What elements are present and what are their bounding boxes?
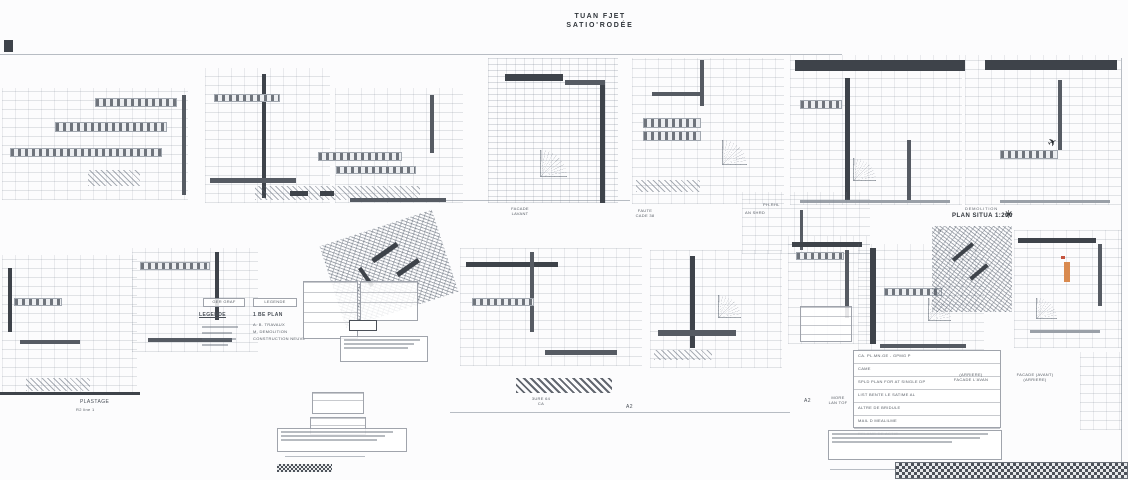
wall-segment	[1018, 238, 1096, 243]
wall-segment	[907, 140, 911, 202]
sheet-marker-a2: A2	[626, 404, 633, 411]
hatched-wall	[55, 122, 167, 132]
table-row	[313, 400, 363, 407]
note-box	[340, 336, 428, 362]
wall-segment	[545, 350, 617, 355]
wall-segment	[530, 252, 534, 332]
ground-hatch	[516, 378, 612, 393]
legend-header-right: LEGENDE	[253, 298, 297, 307]
wall-segment	[1030, 330, 1100, 333]
note-rule	[285, 456, 365, 457]
wall-segment	[430, 95, 434, 153]
table-row	[313, 393, 363, 400]
legend-header-left: GER GRAF	[203, 298, 245, 307]
compass-star-icon: ✳	[1004, 208, 1013, 222]
dimension-line	[640, 412, 790, 413]
text-line	[344, 347, 408, 349]
table-row	[361, 292, 417, 302]
edge-mark	[4, 40, 13, 52]
table-row	[311, 418, 365, 425]
detail-cluster	[1080, 352, 1122, 430]
wall-segment	[795, 60, 965, 71]
annotation-table	[360, 281, 418, 321]
legend-swatch	[202, 326, 238, 328]
hatched-wall	[643, 118, 701, 128]
wall-segment	[870, 248, 876, 344]
wall-segment	[466, 262, 558, 267]
hatch-area	[636, 180, 700, 192]
facade-caption-right: FAUTE CADE 38	[615, 208, 675, 218]
wall-segment	[652, 92, 704, 96]
sheet-rule	[0, 54, 842, 55]
hatch-area	[654, 350, 712, 360]
hatched-wall	[318, 152, 402, 161]
text-line	[344, 339, 420, 341]
legend-swatch	[202, 332, 232, 334]
title-block-row: ALTRE DE BRIDULE	[854, 402, 1000, 415]
title-block-row: CA. PL.MN.GE - GPMG P	[854, 351, 1000, 363]
text-line	[832, 441, 952, 443]
hatched-wall	[643, 131, 701, 141]
hatched-wall	[796, 252, 844, 260]
facade-caption-left-line2: LAVANT	[490, 211, 550, 216]
legend-item: A. B. TRAVAUX	[253, 322, 285, 327]
scale-bar	[277, 464, 332, 472]
legend-item: CONSTRUCTION NEUVE	[253, 336, 306, 341]
hatched-wall	[800, 100, 842, 109]
sheet-title-line2: SATIO'RODÉE	[510, 21, 690, 30]
wall-segment	[290, 191, 308, 196]
wall-segment	[792, 242, 862, 247]
ground-line	[0, 392, 140, 395]
wall-segment	[505, 74, 563, 81]
legend-block: GER GRAF LEGENDE LEGENDE 1 BE PLAN A. B.…	[195, 298, 303, 364]
plan-label-left-line1: PLASTAGE	[80, 399, 109, 406]
table-row	[361, 302, 417, 312]
hatched-wall	[14, 298, 62, 306]
title-block: CA. PL.MN.GE - GPMG P CAME SPLD PLAN FOR…	[853, 350, 1001, 428]
wall-segment	[320, 191, 334, 196]
key-cell	[349, 320, 377, 331]
detail-label-1: PH-RHL	[763, 202, 780, 207]
wall-segment	[700, 60, 704, 106]
table-row	[361, 282, 417, 292]
text-line	[832, 437, 980, 439]
legend-swatch	[202, 344, 228, 346]
facade-caption-left: FACADE LAVANT	[490, 206, 550, 216]
title-block-row: MAIL D MEALILME	[854, 415, 1000, 428]
floor-plan-cluster	[790, 55, 962, 205]
hatched-wall	[1000, 150, 1058, 159]
hatched-wall	[472, 298, 534, 306]
text-line	[281, 435, 385, 437]
legend-title: LEGENDE	[199, 312, 226, 319]
table-row	[801, 316, 851, 325]
wall-segment	[658, 330, 736, 336]
annotation-table	[312, 392, 364, 414]
hatched-wall	[95, 98, 177, 107]
table-row	[304, 282, 357, 292]
table-row	[801, 325, 851, 334]
wall-segment	[210, 178, 296, 183]
elevation-caption-right: FACADE (AVANT) (ARRIERE)	[1002, 372, 1068, 382]
wall-segment	[1098, 244, 1102, 306]
wall-segment	[600, 85, 605, 203]
title-block-row: LIST BENTE LE SATIME AL	[854, 389, 1000, 402]
text-line	[344, 343, 414, 345]
red-marker	[1061, 256, 1065, 259]
ground-hatch	[255, 186, 420, 200]
text-line	[832, 433, 988, 435]
text-line	[281, 431, 393, 433]
plan-label-left-line2: R2 line 1	[76, 407, 95, 412]
hatched-wall	[10, 148, 162, 157]
elevation-caption-left: (ARRIERE) FACADE L'AVAN	[942, 372, 1000, 382]
table-row	[304, 292, 357, 302]
ground-hatch	[26, 378, 90, 391]
legend-swatch	[202, 338, 236, 340]
facade-caption-right-line2: CADE 38	[615, 213, 675, 218]
wall-segment	[880, 344, 966, 348]
sheet-marker-a2: A2	[804, 398, 811, 405]
annotation-table	[800, 306, 852, 342]
floor-plan-cluster	[2, 255, 137, 395]
wall-segment	[985, 60, 1117, 70]
elevation-caption-right-line2: (ARRIERE)	[1002, 377, 1068, 382]
table-row	[304, 302, 357, 312]
wall-segment	[8, 268, 12, 332]
sheet-title-line1: TUAN FJET	[510, 12, 690, 21]
hatch-area	[88, 170, 140, 186]
note-box	[828, 430, 1002, 460]
wall-segment	[845, 78, 850, 202]
legend-subtitle: 1 BE PLAN	[253, 312, 283, 319]
text-line	[281, 439, 377, 441]
wall-segment	[20, 340, 80, 344]
elevation-caption-left-line2: FACADE L'AVAN	[942, 377, 1000, 382]
wall-segment	[182, 95, 186, 195]
legend-item: M. DEMOLITION	[253, 329, 287, 334]
detail-label-2: AN SHRD	[745, 210, 765, 215]
hatched-wall	[214, 94, 280, 102]
table-row	[801, 307, 851, 316]
table-row	[801, 334, 851, 343]
wall-segment	[1000, 200, 1110, 203]
site-plan-map	[932, 226, 1012, 312]
hatched-wall	[140, 262, 210, 270]
plan-label-mid: 3URE 64 CA	[516, 396, 566, 406]
dimension-line	[450, 412, 640, 413]
plan-label-mid-line2: CA	[516, 401, 566, 406]
note-box	[277, 428, 407, 452]
highlighted-wall-accent	[1064, 262, 1070, 282]
hatched-wall	[336, 166, 416, 174]
scale-bar	[895, 462, 1128, 479]
sheet-title: TUAN FJET SATIO'RODÉE	[510, 12, 690, 30]
site-plan-label-line1: DEMOLITION	[965, 206, 998, 211]
floor-plan-cluster	[965, 55, 1121, 205]
drawing-sheet: TUAN FJET SATIO'RODÉE	[0, 0, 1128, 480]
wall-segment	[1058, 80, 1062, 150]
wall-segment	[565, 80, 605, 85]
